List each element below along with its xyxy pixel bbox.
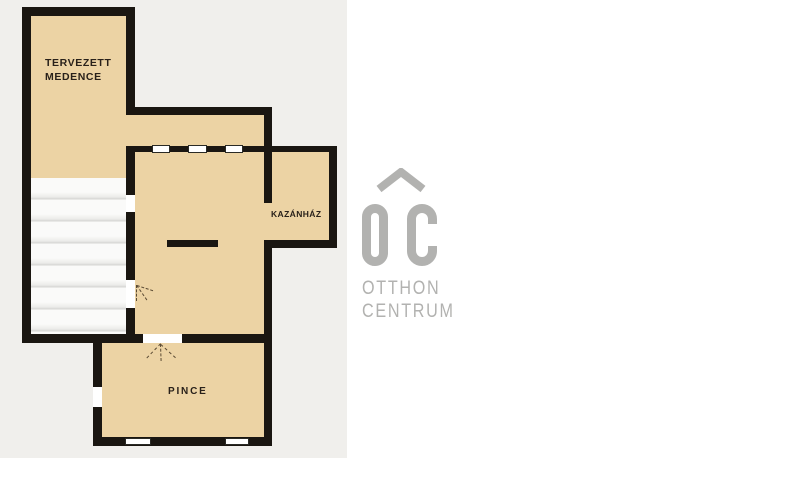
window-opening xyxy=(188,145,207,153)
logo-roof-icon xyxy=(374,168,428,194)
room-fill-corridor xyxy=(126,112,268,148)
wall xyxy=(126,107,272,115)
wall xyxy=(329,146,337,248)
wall-partition xyxy=(167,240,218,247)
logo-text-line2: CENTRUM xyxy=(362,301,455,323)
logo-letter-o xyxy=(362,204,388,266)
door-opening xyxy=(126,195,135,212)
logo-text-line1: OTTHON xyxy=(362,278,440,300)
window-opening xyxy=(125,438,151,445)
room-fill-pool xyxy=(24,10,130,180)
door-opening xyxy=(93,387,102,407)
wall xyxy=(22,7,31,342)
room-fill-boiler xyxy=(266,148,333,244)
wall xyxy=(22,7,133,16)
wall-with-windows xyxy=(93,437,272,446)
wall-with-windows xyxy=(128,146,337,152)
wall xyxy=(22,334,272,343)
screenshot-canvas: TERVEZETT MEDENCE KAZÁNHÁZ PINCE OTTHON … xyxy=(0,0,800,494)
room-label-pool: TERVEZETT MEDENCE xyxy=(45,56,111,84)
wall xyxy=(93,337,102,445)
window-opening xyxy=(225,438,249,445)
logo-letter-c-cut xyxy=(425,224,441,246)
room-label-pool-line1: TERVEZETT xyxy=(45,56,111,70)
wall xyxy=(264,107,272,203)
room-label-pool-line2: MEDENCE xyxy=(45,70,111,84)
wall xyxy=(126,146,135,341)
wall xyxy=(126,7,135,111)
door-opening xyxy=(126,280,135,308)
floorplan-panel: TERVEZETT MEDENCE KAZÁNHÁZ PINCE xyxy=(0,0,347,458)
wall xyxy=(264,240,272,445)
room-label-boiler: KAZÁNHÁZ xyxy=(271,209,321,219)
door-opening xyxy=(143,334,182,343)
window-opening xyxy=(152,145,170,153)
room-label-cellar: PINCE xyxy=(168,386,208,397)
window-opening xyxy=(225,145,243,153)
staircase xyxy=(28,178,126,334)
wall xyxy=(264,240,337,248)
